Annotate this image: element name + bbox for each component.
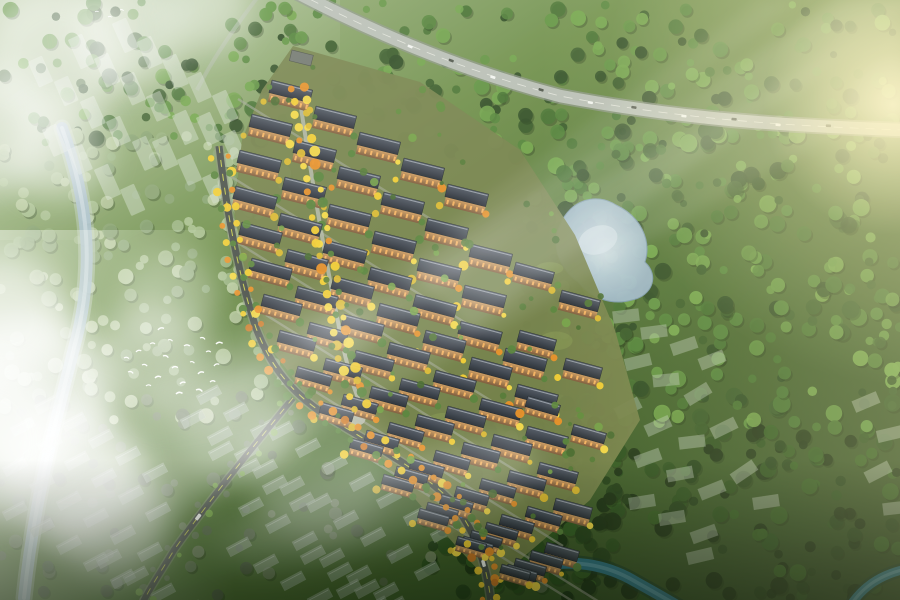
bottom-vignette [0,460,900,600]
fog-cloud [122,252,218,348]
vignette [0,460,900,600]
aerial-render [0,0,900,600]
render-viewport [0,0,900,600]
fog-cloud [12,102,108,198]
